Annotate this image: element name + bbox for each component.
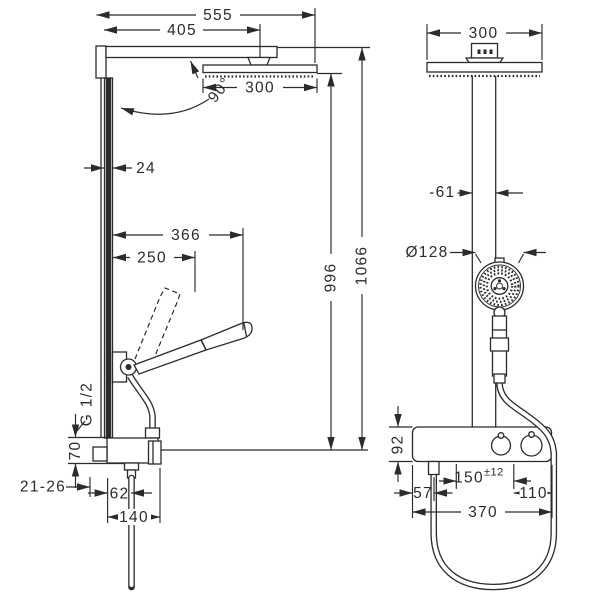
dim-supply-edge-label: 110 (519, 485, 548, 502)
hose-holder-inner (130, 376, 153, 430)
dim-supply-tolerance-label: ±12 (484, 467, 504, 479)
dim-valve-depth-label: 140 (119, 509, 149, 526)
dim-head-center-label: 405 (167, 22, 197, 39)
volume-knob-nub (529, 432, 535, 438)
ball-joint-flange (466, 58, 503, 63)
handshower-handle (134, 340, 206, 374)
dim-bar-height-label: 92 (390, 435, 407, 455)
hose-outlet-upper (125, 463, 139, 470)
supply-stub (93, 447, 107, 461)
dim-valve-height-label: 70 (67, 441, 84, 461)
dim-wall-range-label: 21-26 (20, 479, 66, 496)
overhead-shower-disc (203, 65, 317, 73)
angle-leader-arm (191, 61, 199, 78)
pipe-fill (106, 78, 111, 438)
ball-joint (248, 58, 270, 66)
dimension-drawing: 555 405 300 90° 24 366 250 996 (0, 0, 600, 600)
dim-handshower-reach-label: 366 (171, 227, 201, 244)
handle-grip-block (491, 338, 509, 351)
valve-knob-side (149, 441, 162, 464)
dim-handshower-dia-label: Ø128 (405, 244, 448, 261)
ext-128-r (519, 254, 524, 263)
dim-supply-spacing-label: 150 (454, 470, 484, 487)
drawing-canvas: 555 405 300 90° 24 366 250 996 (0, 0, 600, 600)
hose-nut (494, 374, 505, 383)
side-view (93, 46, 317, 587)
dim-hose-edge-label: 57 (413, 485, 433, 502)
dim-pipe-depth-label: 24 (136, 160, 156, 177)
dim-height-face-label: 996 (323, 263, 340, 293)
hose-bar-connector (429, 462, 440, 475)
dim-bar-width-label: 370 (468, 504, 498, 521)
dim-head-size-front-label: 300 (469, 25, 499, 42)
dim-head-size-side-label: 300 (245, 80, 275, 97)
shower-arm (106, 47, 277, 58)
dim-hose-offset-label: 62 (110, 486, 130, 503)
ball-joint-detail (478, 50, 493, 55)
overhead-shower-disc (427, 63, 542, 73)
dim-pipe-width-label: 61 (436, 184, 456, 201)
dim-thread-label: G 1/2 (79, 382, 96, 426)
angle-leader-pipe (121, 99, 209, 114)
holder-pivot-pin (126, 364, 132, 370)
ext-128-l (476, 254, 482, 263)
hose-inlet-fitting (146, 428, 160, 438)
temp-knob-nub (498, 433, 504, 439)
wall-plate (96, 46, 106, 78)
dim-handshower-raised-label: 250 (137, 250, 167, 267)
dim-arm-angle-label: 90° (205, 74, 235, 106)
volume-knob (521, 435, 542, 456)
dim-total-projection-label: 555 (203, 7, 233, 24)
dim-height-overall-label: 1066 (354, 246, 371, 286)
